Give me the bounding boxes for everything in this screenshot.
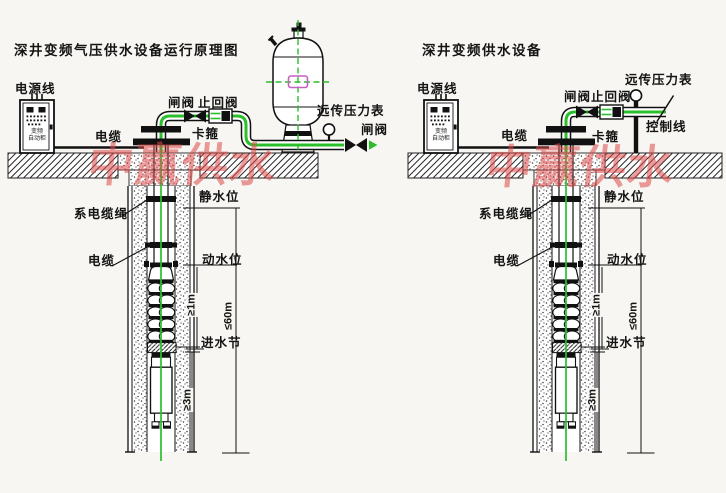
right-static-level-label: 静水位	[604, 191, 645, 204]
vfd-cabinet-left	[20, 94, 54, 153]
left-static-level-label: 静水位	[199, 191, 240, 204]
right-surface-cable-label: 电缆	[501, 130, 528, 143]
right-check-valve-label: 止回阀	[591, 91, 632, 104]
right-dim-3m: ≥3m	[588, 388, 599, 412]
left-gate-valve-label: 闸阀	[168, 97, 195, 110]
left-outlet-gate-valve-label: 闸阀	[361, 124, 388, 137]
left-tie-rope-label: 系电缆绳	[74, 208, 128, 221]
left-dim-1m: ≥1m	[187, 293, 198, 317]
right-clamp-label: 卡箍	[592, 131, 619, 144]
left-power-line-label: 电源线	[15, 83, 56, 96]
left-cabinet-text-1: 变频	[21, 129, 53, 135]
vfd-cabinet-right	[424, 94, 458, 153]
right-gate-valve-label: 闸阀	[564, 91, 591, 104]
outlet-gate-valve-icon-left	[345, 138, 367, 152]
pressure-gauge-icon-left	[323, 124, 334, 141]
flow-arrow-icon-left	[369, 140, 378, 149]
remote-pressure-gauge-icon-right	[630, 90, 641, 101]
right-title: 深井变频供水设备	[422, 44, 542, 58]
right-inlet-section-label: 进水节	[606, 337, 647, 350]
watermark-right: 中赢供水	[484, 144, 677, 190]
left-well-cable-label: 电缆	[88, 255, 115, 268]
right-dim-1m: ≥1m	[592, 293, 603, 317]
right-power-line-label: 电源线	[417, 83, 458, 96]
left-remote-gauge-label: 远传压力表	[317, 105, 385, 118]
left-dim-3m: ≥3m	[183, 388, 194, 412]
check-valve-icon-left	[209, 109, 232, 123]
right-control-line-label: 控制线	[646, 121, 687, 134]
left-title: 深井变频气压供水设备运行原理图	[14, 44, 239, 58]
right-well-cable-label: 电缆	[493, 255, 520, 268]
left-clamp-label: 卡箍	[192, 128, 219, 141]
right-cabinet-text-2: 自动柜	[425, 136, 457, 142]
left-dim-60m: ≤60m	[224, 301, 235, 331]
right-cabinet-text-1: 变频	[425, 129, 457, 135]
left-inlet-section-label: 进水节	[201, 337, 242, 350]
diagram-canvas	[0, 0, 726, 493]
left-cabinet-text-2: 自动柜	[21, 136, 53, 142]
left-dynamic-level-label: 动水位	[202, 254, 243, 267]
watermark-left: 中赢供水	[86, 142, 279, 188]
right-dynamic-level-label: 动水位	[607, 254, 648, 267]
right-remote-gauge-label: 远传压力表	[625, 74, 693, 87]
left-check-valve-label: 止回阀	[198, 97, 239, 110]
left-surface-cable-label: 电缆	[95, 131, 122, 144]
right-dim-60m: ≤60m	[629, 301, 640, 331]
diagram-page: 中赢供水 中赢供水 深井变频气压供水设备运行原理图 电源线 变频 自动柜 闸阀 …	[0, 0, 726, 493]
right-tie-rope-label: 系电缆绳	[479, 208, 533, 221]
check-valve-icon-right	[600, 105, 623, 119]
